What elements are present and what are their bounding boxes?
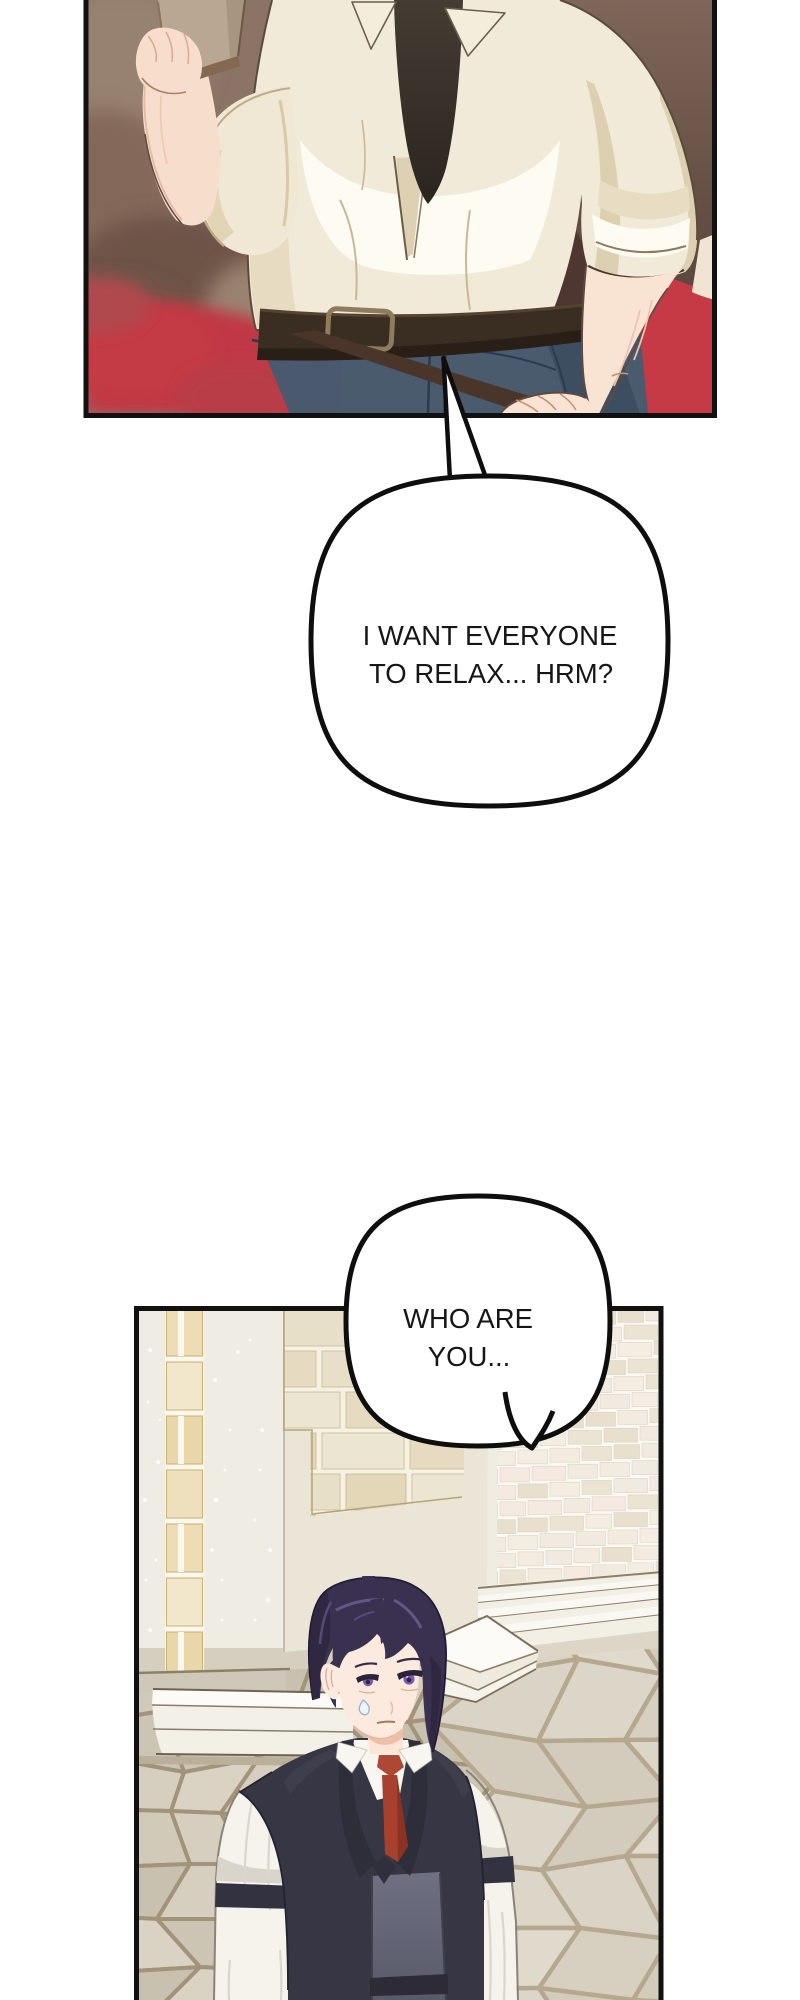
svg-text:YOU...: YOU...: [428, 1341, 511, 1372]
svg-text:WHO ARE: WHO ARE: [403, 1303, 533, 1334]
svg-text:I WANT EVERYONE: I WANT EVERYONE: [363, 620, 618, 651]
svg-text:TO RELAX... HRM?: TO RELAX... HRM?: [369, 658, 613, 689]
